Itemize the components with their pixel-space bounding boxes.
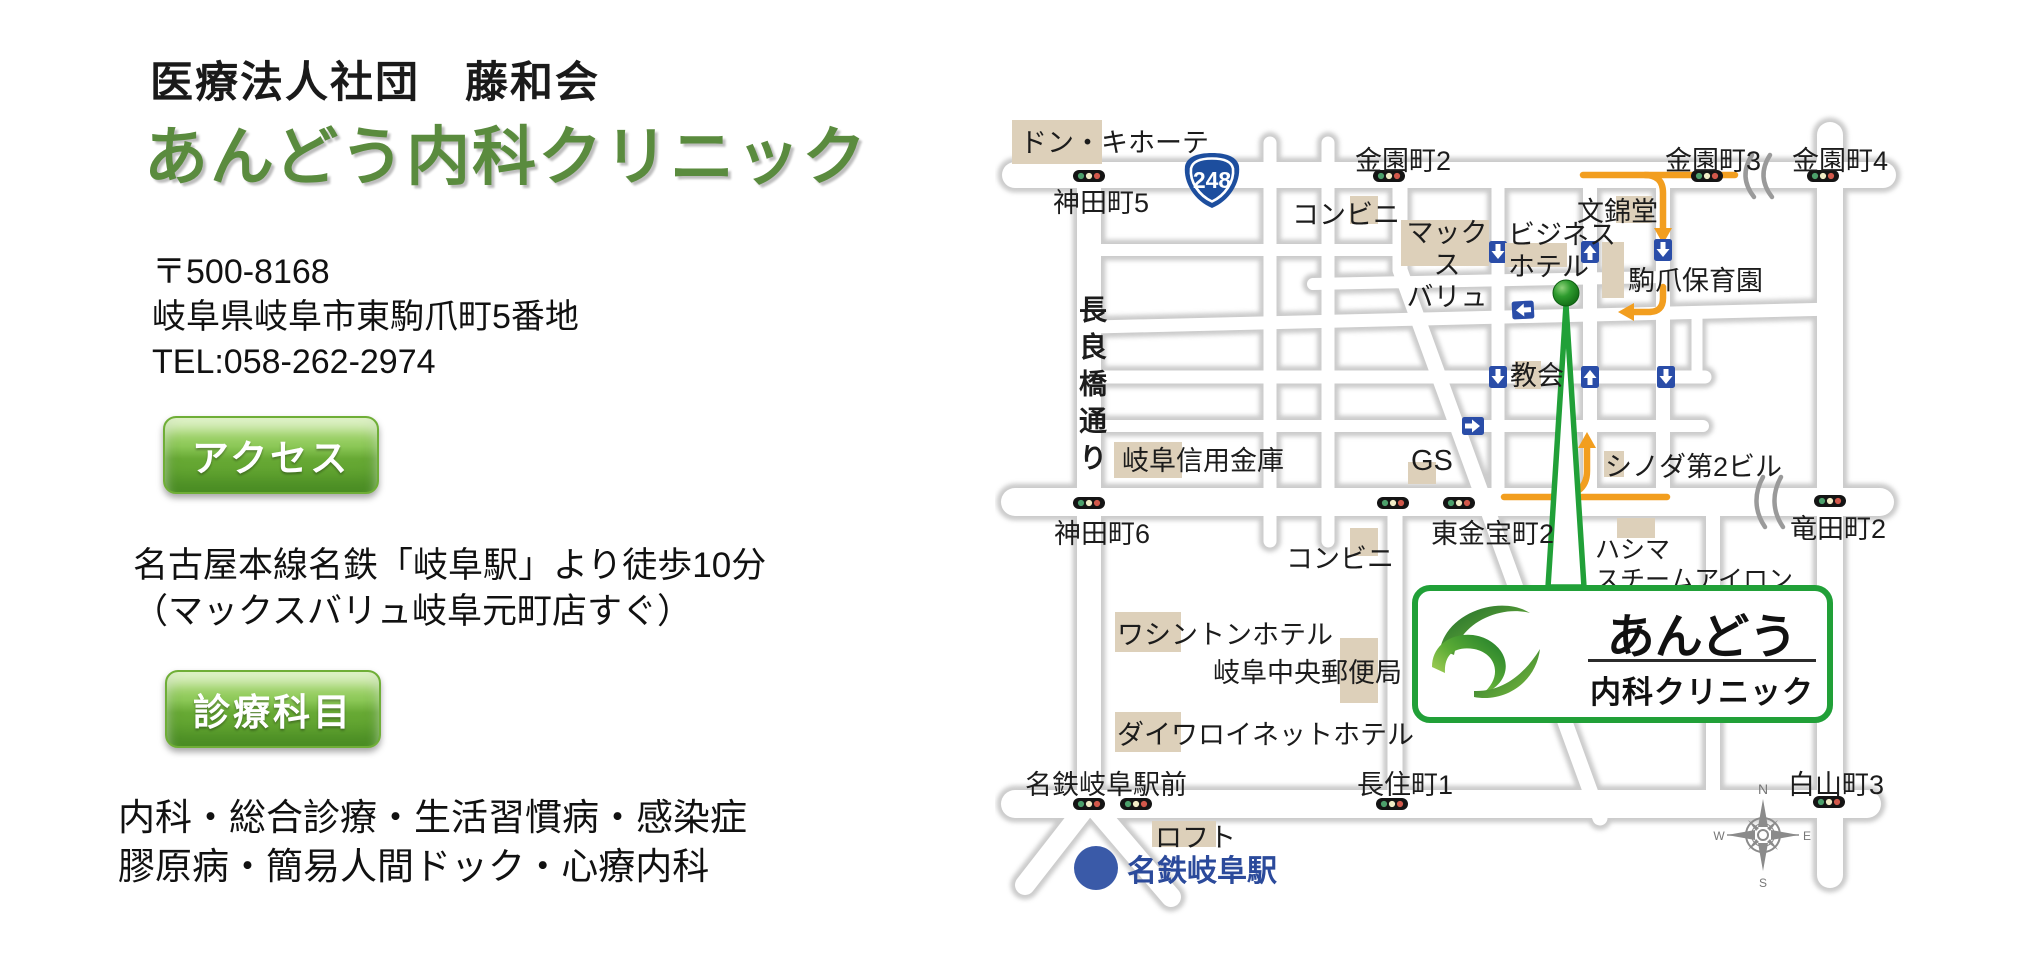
clinic-name-heading: あんどう内科クリニック (144, 106, 868, 198)
map-label-kinzono4: 金園町4 (1792, 146, 1888, 178)
map-label-donki: ドン・キホーテ (1020, 128, 1209, 160)
access-map: 248 N E (995, 85, 2031, 971)
traffic-light-kanda5 (1073, 170, 1105, 182)
compass-n: N (1758, 781, 1768, 797)
map-label-kyokai: 教会 (1510, 361, 1564, 393)
map-label-loft: ロフト (1155, 823, 1236, 855)
departments-button[interactable]: 診療科目 (165, 670, 381, 748)
street-address: 岐阜県岐阜市東駒爪町5番地 (152, 295, 579, 340)
traffic-light-higashikinpocho2 (1443, 497, 1475, 509)
oneway-up-icon (1581, 366, 1599, 388)
map-label-kanda6: 神田町6 (1054, 519, 1150, 551)
departments-line-2: 膠原病・簡易人間ドック・心療内科 (118, 842, 747, 891)
map-label-business-hotel: ビジネス ホテル (1508, 220, 1616, 284)
clinic-pin-icon (1553, 280, 1579, 306)
compass-s: S (1759, 876, 1767, 890)
traffic-light (1377, 497, 1409, 509)
oneway-down-icon (1489, 366, 1507, 388)
oneway-down-icon (1654, 239, 1672, 261)
map-label-kinzono2: 金園町2 (1355, 146, 1451, 178)
map-label-daiwa-roynet: ダイワロイネットホテル (1117, 720, 1414, 752)
map-label-washington-hotel: ワシントンホテル (1117, 620, 1333, 652)
postal-code: 〒500-8168 (152, 250, 579, 295)
traffic-light-tatsutacho2 (1814, 495, 1846, 507)
building-highlight-hashima (1617, 518, 1655, 538)
compass-e: E (1803, 829, 1811, 843)
compass-w: W (1713, 829, 1725, 843)
map-label-gifu-chuo-post: 岐阜中央郵便局 (1213, 658, 1402, 690)
map-label-komazume: 駒爪保育園 (1628, 266, 1763, 298)
map-label-gifu-shinkin: 岐阜信用金庫 (1122, 446, 1284, 478)
clinic-logo-line2: 内科クリニック (1588, 667, 1816, 712)
map-label-tatsutacho2: 竜田町2 (1790, 514, 1886, 546)
oneway-down-icon (1657, 366, 1675, 388)
page: 医療法人社団 藤和会 あんどう内科クリニック 〒500-8168 岐阜県岐阜市東… (0, 0, 2031, 971)
map-label-higashikinpocho2: 東金宝町2 (1431, 519, 1554, 551)
departments-line-1: 内科・総合診療・生活習慣病・感染症 (118, 793, 747, 842)
clinic-logo-divider (1588, 659, 1816, 662)
organization-title: 医療法人社団 藤和会 (150, 48, 600, 110)
clinic-logo-line1: あんどう (1586, 597, 1818, 667)
access-description: 名古屋本線名鉄「岐阜駅」より徒歩10分 （マックスバリュ岐阜元町店すぐ） (133, 543, 766, 635)
map-label-conbini-south: コンビニ (1286, 544, 1394, 576)
phone-number: TEL:058-262-2974 (152, 340, 579, 385)
map-label-nagazumicho1: 長住町1 (1357, 770, 1453, 802)
station-circle-icon (1074, 846, 1118, 890)
map-label-station: 名鉄岐阜駅 (1127, 854, 1277, 889)
map-label-shinoda: シノダ第2ビル (1605, 452, 1782, 484)
access-line-2: （マックスバリュ岐阜元町店すぐ） (133, 589, 766, 635)
oneway-right-icon (1462, 417, 1484, 435)
map-label-bunkindo: 文錦堂 (1577, 197, 1658, 229)
map-label-conbini-north: コンビニ (1292, 200, 1400, 232)
map-label-maxvalu: マックス バリュ (1403, 218, 1491, 314)
map-label-nagarabashi-dori: 長良橋通り (1075, 295, 1108, 480)
clinic-logo-callout: あんどう 内科クリニック (1412, 585, 1833, 723)
map-label-kinzono3: 金園町3 (1665, 146, 1761, 178)
map-label-hakusancho3: 白山町3 (1788, 770, 1884, 802)
access-line-1: 名古屋本線名鉄「岐阜駅」より徒歩10分 (133, 543, 766, 589)
access-button[interactable]: アクセス (163, 416, 379, 494)
map-label-meitetsu-ekimae: 名鉄岐阜駅前 (1025, 770, 1187, 802)
traffic-light-kanda6 (1073, 497, 1105, 509)
clinic-logo-icon (1418, 591, 1558, 706)
map-label-kanda5: 神田町5 (1053, 188, 1149, 220)
oneway-left-icon (1512, 300, 1535, 319)
departments-description: 内科・総合診療・生活習慣病・感染症 膠原病・簡易人間ドック・心療内科 (118, 793, 747, 891)
route-number: 248 (1193, 167, 1232, 193)
map-label-gs: GS (1411, 444, 1453, 478)
route-248-badge: 248 (1185, 153, 1239, 208)
address-block: 〒500-8168 岐阜県岐阜市東駒爪町5番地 TEL:058-262-2974 (152, 250, 579, 386)
